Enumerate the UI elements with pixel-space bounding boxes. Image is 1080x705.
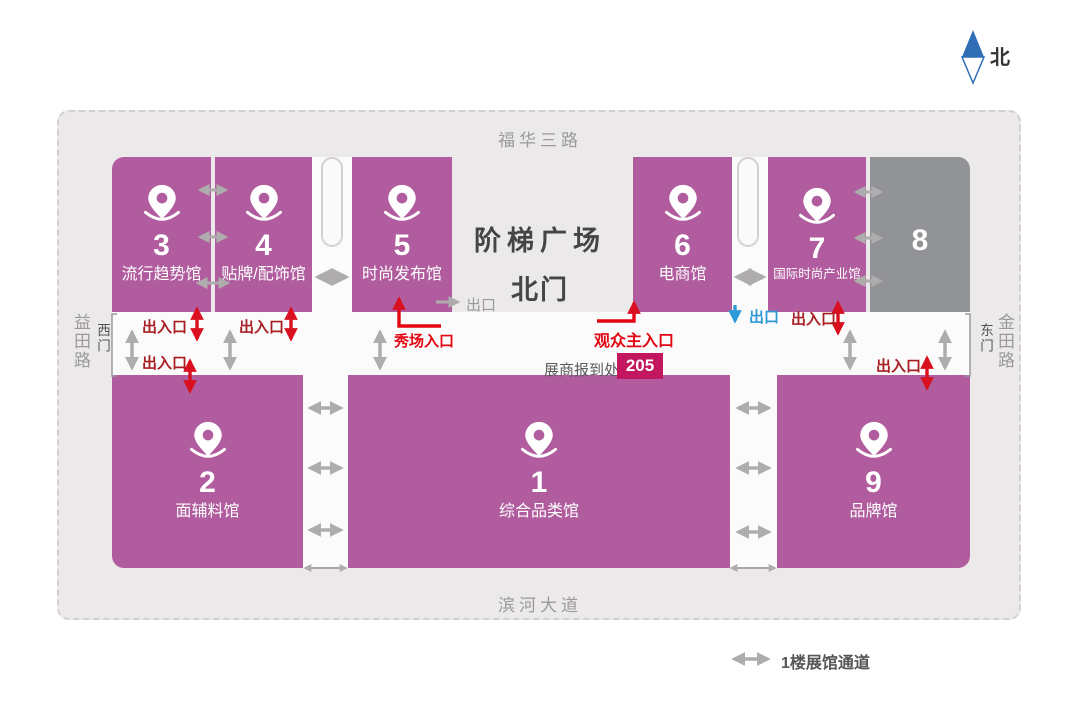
- exhibitor-checkin-label: 展商报到处: [544, 359, 619, 380]
- entrance-exit-label: 出入口: [791, 308, 836, 329]
- location-pin-icon: [242, 183, 286, 227]
- location-pin-icon: [380, 183, 424, 227]
- location-pin-icon: [852, 420, 896, 464]
- stair-lane-icon: [321, 157, 343, 247]
- hall-7: 7 国际时尚产业馆: [768, 157, 866, 312]
- hall-name: 时尚发布馆: [362, 264, 442, 286]
- hall-name: 品牌馆: [849, 501, 897, 523]
- location-pin-icon: [140, 183, 184, 227]
- hall-8: 8: [870, 157, 970, 312]
- hall-name: 流行趋势馆: [121, 264, 201, 286]
- hall-number: 2: [199, 466, 216, 501]
- hall-9: 9 品牌馆: [777, 375, 970, 568]
- entrance-exit-label: 出入口: [142, 316, 187, 337]
- location-pin-icon: [517, 420, 561, 464]
- location-pin-icon: [661, 183, 705, 227]
- venue-map-page: 北 3 流行趋势馆 4 贴牌/配饰馆 5 时尚发布馆: [0, 0, 1080, 705]
- road-west: 益田路: [68, 313, 93, 370]
- hall-2: 2 面辅料馆: [112, 375, 303, 568]
- checkin-room-badge: 205: [617, 353, 663, 379]
- hall-name: 贴牌/配饰馆: [221, 264, 305, 286]
- entrance-exit-label: 出入口: [239, 316, 284, 337]
- show-entrance-label: 秀场入口: [394, 330, 454, 351]
- north-arrow-icon: [958, 28, 988, 86]
- plaza-label: 阶梯广场: [440, 219, 640, 258]
- west-gate-label: 西门: [92, 323, 112, 354]
- road-north: 福华三路: [440, 126, 640, 151]
- hall-name: 综合品类馆: [499, 501, 579, 523]
- hall-number: 5: [394, 229, 411, 264]
- road-east: 金田路: [992, 313, 1017, 370]
- exit-label-north-gate: 出口: [466, 294, 496, 315]
- entrance-exit-label: 出入口: [142, 352, 187, 373]
- hall-6: 6 电商馆: [633, 157, 732, 312]
- north-label: 北: [990, 41, 1010, 70]
- hall-number: 1: [531, 466, 548, 501]
- stair-lane-icon: [737, 157, 759, 247]
- location-pin-icon: [186, 420, 230, 464]
- hall-number: 8: [912, 224, 929, 259]
- east-gate-label: 东门: [975, 323, 995, 354]
- entrance-exit-label: 出入口: [876, 355, 921, 376]
- road-south: 滨河大道: [440, 591, 640, 616]
- location-pin-icon: [795, 186, 839, 230]
- exit-label-blue: 出口: [749, 306, 779, 327]
- hall-name: 国际时尚产业馆: [773, 266, 861, 283]
- corridor-hall2-hall1: [303, 375, 348, 568]
- audience-entrance-label: 观众主入口: [594, 327, 674, 351]
- hall-5: 5 时尚发布馆: [352, 157, 452, 312]
- hall-3: 3 流行趋势馆: [112, 157, 211, 312]
- hall-name: 面辅料馆: [175, 501, 239, 523]
- hall-name: 电商馆: [658, 264, 706, 286]
- hall-1: 1 综合品类馆: [348, 375, 730, 568]
- hall-number: 4: [255, 229, 272, 264]
- hall-number: 9: [865, 466, 882, 501]
- corridor-hall1-hall9: [730, 375, 777, 568]
- legend-passage-label: 1楼展馆通道: [781, 649, 870, 673]
- hall-4: 4 贴牌/配饰馆: [215, 157, 312, 312]
- hall-number: 7: [809, 232, 826, 267]
- hall-number: 6: [674, 229, 691, 264]
- hall-number: 3: [153, 229, 170, 264]
